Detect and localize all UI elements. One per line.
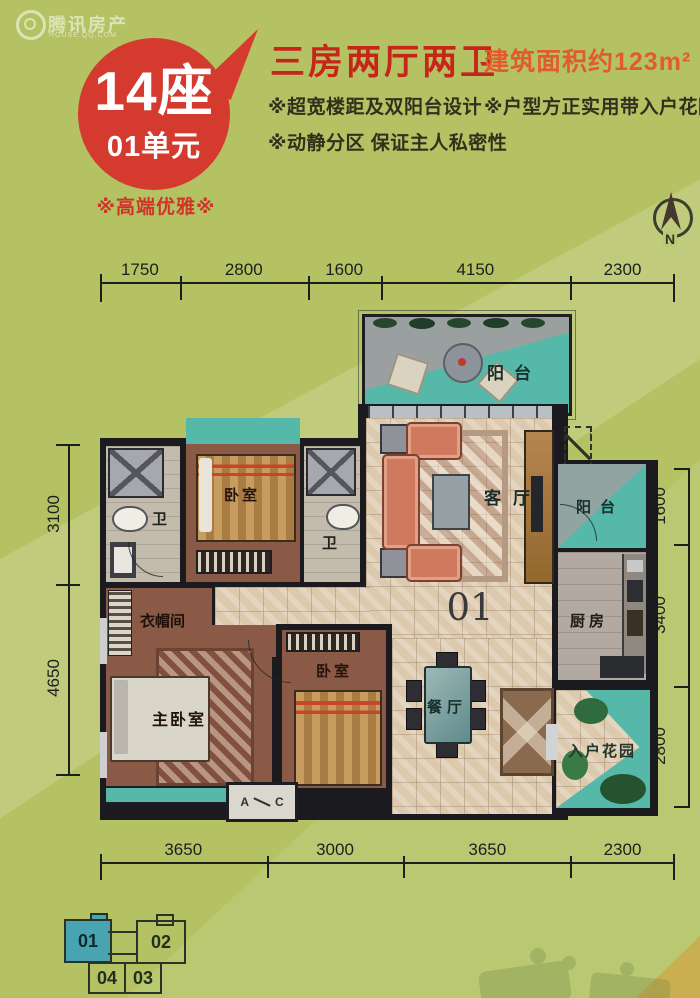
floor-plan: 阳台 卫 卧室 卫 衣帽间 <box>100 308 660 820</box>
dining-chair <box>406 680 422 702</box>
building-number: 14座 <box>94 64 213 119</box>
dim-bottom-2: 3000 <box>316 840 354 860</box>
keyplan-bridge <box>108 931 136 955</box>
master-window-strip <box>106 786 226 804</box>
dining-chair <box>436 742 458 758</box>
dining-chair <box>406 708 422 730</box>
bathroom-left-label: 卫 <box>152 508 167 529</box>
unit-number-plan: 01 <box>444 586 496 629</box>
dim-top-5: 2300 <box>604 260 642 280</box>
feature-1: ※超宽楼距及双阳台设计 <box>268 92 482 119</box>
bedroom-top-label: 卧室 <box>224 484 260 505</box>
keyplan-unit-01: 01 <box>64 919 112 963</box>
plant <box>409 318 435 329</box>
plant <box>483 318 509 328</box>
toilet-left <box>112 506 148 532</box>
area-text: 建筑面积约123m² <box>484 42 691 78</box>
speech-bubble: 14座 01单元 <box>78 38 230 190</box>
bathroom-mid-label: 卫 <box>322 532 337 553</box>
entry-door-gap <box>546 724 558 760</box>
wardrobe <box>108 590 132 656</box>
garden-plant <box>600 774 646 804</box>
feature-2: ※户型方正实用带入户花园 <box>484 92 700 119</box>
watermark-sub: HOUSE.QQ.COM <box>49 32 117 39</box>
dimension-bar-bottom: 3650 3000 3650 2300 <box>100 838 675 878</box>
sofa-bottom-seat <box>406 544 462 582</box>
bedroom-top-pillow <box>199 458 212 532</box>
dim-top-2: 2800 <box>225 260 263 280</box>
keyplan-unit-01-label: 01 <box>78 931 98 952</box>
left-wall-window <box>100 732 107 778</box>
dim-bottom-3: 3650 <box>468 840 506 860</box>
dining-label: 餐厅 <box>427 696 467 717</box>
compass: N <box>648 190 696 250</box>
ac-unit-marker-top <box>564 426 592 468</box>
living-room-label: 客厅 <box>484 484 542 509</box>
garden-floor: 入户花园 <box>556 690 650 808</box>
bedroom-top-shelf <box>196 550 272 574</box>
bedroom2-shelf <box>286 632 360 652</box>
dim-bottom-4: 2300 <box>604 840 642 860</box>
keyplan-unit-03: 03 <box>124 962 162 994</box>
tagline: ※高端优雅※ <box>80 192 232 219</box>
balcony-table <box>443 343 483 383</box>
bedroom2-label: 卧室 <box>316 660 352 681</box>
dining-chair <box>470 708 486 730</box>
watermark-logo: 腾讯房产 HOUSE.QQ.COM <box>16 8 146 42</box>
kitchen-counter-bottom <box>600 656 644 678</box>
bedroom2-bed <box>294 690 382 786</box>
ac-diagonal <box>253 797 270 806</box>
balcony-top: 阳台 <box>362 314 572 416</box>
dimension-bar-left: 3100 4650 <box>44 438 88 782</box>
garden-label: 入户花园 <box>568 740 636 761</box>
shower-left <box>108 448 164 498</box>
dining-chair <box>470 680 486 702</box>
dim-top-4: 4150 <box>456 260 494 280</box>
compass-n-label: N <box>663 231 677 247</box>
cloakroom-label: 衣帽间 <box>140 610 185 631</box>
key-plan: 01 02 04 03 <box>60 915 230 995</box>
dim-bottom-1: 3650 <box>164 840 202 860</box>
kitchen-floor: 厨房 <box>558 552 646 680</box>
plant <box>521 318 545 328</box>
sofa-left-seat <box>382 454 420 550</box>
balcony-top-label: 阳台 <box>487 359 541 384</box>
keyplan-unit-03-label: 03 <box>133 968 153 989</box>
floorplan-flyer: 腾讯房产 HOUSE.QQ.COM 14座 01单元 ※高端优雅※ 三房两厅两卫… <box>0 0 700 998</box>
stove <box>627 580 643 602</box>
living-balcony-glass-door <box>368 406 552 418</box>
ac-marker-bottom: A C <box>226 782 298 822</box>
dim-top-1: 1750 <box>121 260 159 280</box>
toilet-mid <box>326 504 360 530</box>
keyplan-unit-04: 04 <box>88 962 126 994</box>
dimension-bar-top: 1750 2800 1600 4150 2300 <box>100 260 675 302</box>
bg-site-illustration <box>470 928 700 998</box>
garden-plant <box>574 698 608 724</box>
master-bedroom-label: 主卧室 <box>152 706 206 730</box>
plant <box>447 318 471 328</box>
unit-number: 01单元 <box>107 123 201 165</box>
kitchen-label: 厨房 <box>570 610 608 631</box>
ac-marker-c: C <box>275 795 284 809</box>
keyplan-unit-02: 02 <box>136 920 186 964</box>
ac-marker-a: A <box>240 795 249 809</box>
fridge <box>627 610 643 636</box>
keyplan-unit-02-label: 02 <box>151 932 171 953</box>
layout-title: 三房两厅两卫 <box>270 34 498 85</box>
dim-top-3: 1600 <box>325 260 363 280</box>
shower-mid <box>306 448 356 496</box>
dim-left-2: 4650 <box>44 648 64 708</box>
bedroom-top-window <box>186 418 300 446</box>
keyplan-unit-04-label: 04 <box>97 968 117 989</box>
dim-left-1: 3100 <box>44 484 64 544</box>
plant <box>373 318 397 328</box>
hallway-floor <box>215 587 370 625</box>
left-wall-window <box>100 618 107 664</box>
coffee-table <box>432 474 470 530</box>
feature-3: ※动静分区 保证主人私密性 <box>268 128 507 155</box>
watermark-logo-icon <box>16 10 46 40</box>
